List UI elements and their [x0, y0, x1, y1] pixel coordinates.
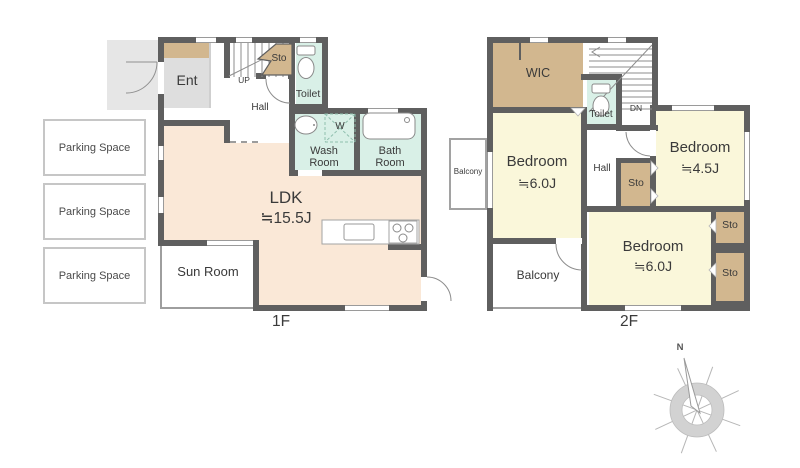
wall — [652, 37, 658, 111]
ldk-size-label: ≒15.5J — [236, 210, 336, 227]
floor2-label: 2F — [599, 313, 659, 330]
wall — [650, 105, 656, 212]
wall — [158, 120, 230, 126]
hall-label-2f: Hall — [582, 163, 622, 174]
ldk-door-gap — [421, 277, 427, 301]
wall — [224, 37, 230, 78]
stairs-down-label: DN — [622, 104, 650, 114]
storage-mid-label: Sto — [620, 178, 652, 190]
parking-space-1: Parking Space — [43, 119, 146, 176]
wall — [253, 305, 427, 311]
window — [207, 240, 253, 246]
parking-space-label: Parking Space — [59, 270, 131, 282]
door-arc-hall-1f — [266, 79, 290, 103]
wic-label: WIC — [498, 66, 578, 80]
balcony-bottom-label: Balcony — [493, 269, 583, 282]
ldk-name-label: LDK — [236, 188, 336, 207]
bedroom-2 — [656, 111, 744, 206]
window — [158, 146, 164, 160]
door-arc-bedroom2 — [626, 132, 650, 156]
window — [300, 37, 316, 43]
wall — [487, 37, 658, 43]
floor1-label: 1F — [251, 313, 311, 330]
window — [530, 37, 548, 43]
window — [625, 305, 681, 311]
parking-space-label: Parking Space — [59, 206, 131, 218]
bedroom1-name-label: Bedroom — [492, 154, 582, 171]
stairs-up-label: UP — [230, 76, 258, 86]
wash-room-label: Wash Room — [294, 145, 354, 170]
entrance-porch — [107, 40, 158, 110]
toilet-label-2f: Toilet — [581, 109, 621, 120]
floor-plan-canvas: Parking Space Parking Space Parking Spac… — [0, 0, 800, 468]
compass-north-label: N — [672, 343, 688, 354]
wash-door-gap — [298, 170, 322, 176]
toilet-label-1f: Toilet — [288, 89, 328, 101]
wall — [388, 244, 427, 250]
wall — [583, 206, 750, 212]
bedroom1-size-label: ≒6.0J — [492, 176, 582, 192]
window — [236, 37, 252, 43]
bedroom3-name-label: Bedroom — [608, 239, 698, 256]
hall-door-gap — [266, 73, 288, 79]
ent-label: Ent — [164, 73, 210, 89]
compass-needle — [684, 358, 700, 413]
wall — [487, 107, 587, 113]
compass-rose — [654, 358, 740, 453]
window — [608, 37, 626, 43]
step-dashed-line — [230, 135, 258, 143]
bedroom2-name-label: Bedroom — [655, 140, 745, 157]
hall-label-1f: Hall — [240, 102, 280, 113]
bedroom2-size-label: ≒4.5J — [655, 161, 745, 177]
window — [368, 108, 398, 114]
bath-room-label: Bath Room — [359, 145, 421, 170]
wic-divider-line — [519, 43, 521, 60]
window — [672, 105, 714, 111]
storage-label-1f: Sto — [263, 53, 295, 64]
bedroom3-size-label: ≒6.0J — [608, 259, 698, 275]
window — [196, 37, 216, 43]
storage-right-2-label: Sto — [714, 268, 746, 280]
washer-label: W — [330, 121, 350, 132]
balcony-door-gap — [556, 238, 582, 244]
parking-space-3: Parking Space — [43, 247, 146, 304]
parking-space-2: Parking Space — [43, 183, 146, 240]
balcony-left-label: Balcony — [450, 168, 486, 177]
parking-space-label: Parking Space — [59, 142, 131, 154]
door-arc-ldk-east — [427, 277, 451, 301]
window — [158, 197, 164, 213]
window — [345, 305, 389, 311]
storage-right-1-label: Sto — [714, 220, 746, 232]
shoe-closet — [164, 43, 210, 58]
sun-room-label: Sun Room — [162, 265, 254, 280]
wall — [616, 74, 622, 130]
